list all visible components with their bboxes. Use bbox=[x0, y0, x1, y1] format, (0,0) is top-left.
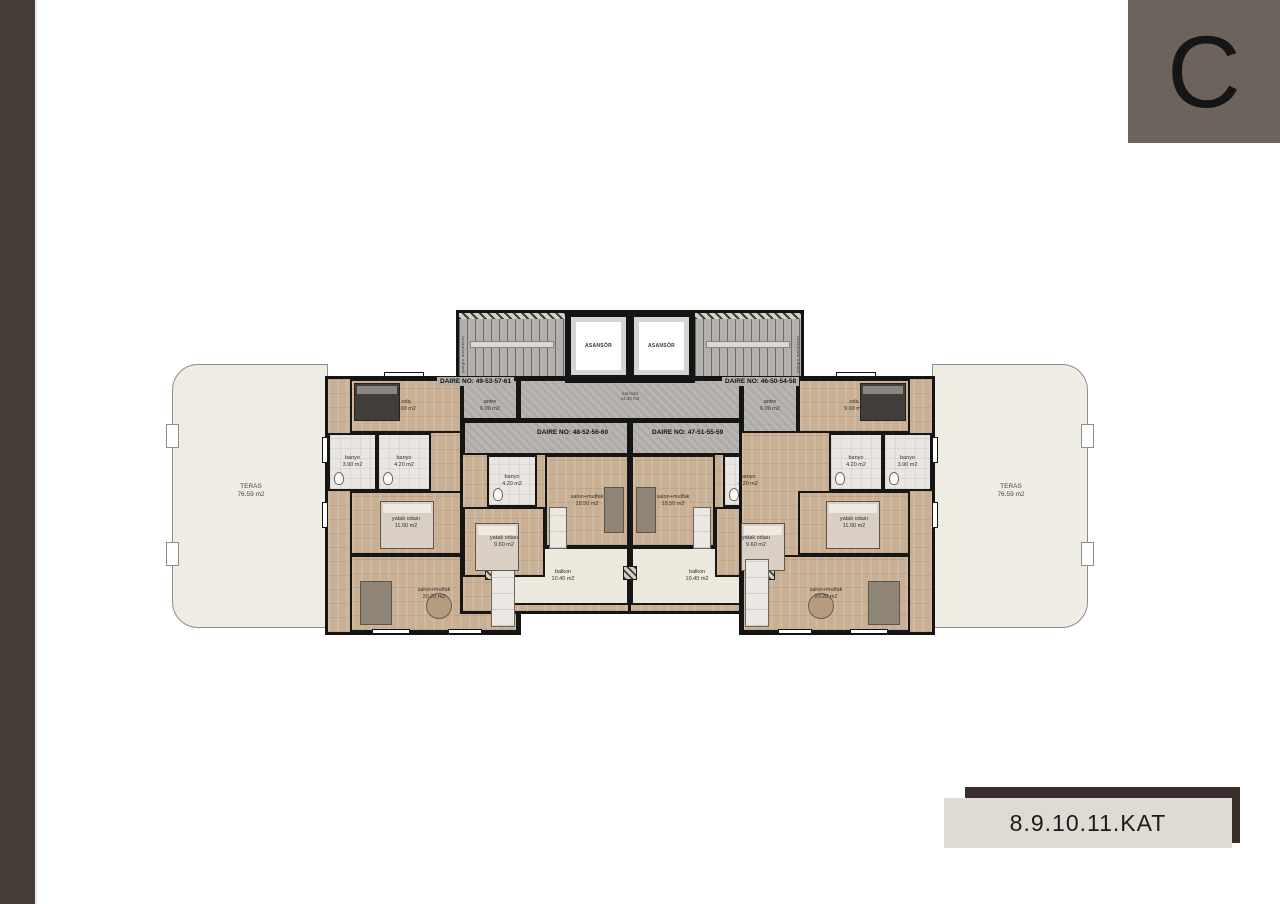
room-area: 6.00 m2 bbox=[760, 406, 780, 413]
hall-area: 14.30 m2 bbox=[606, 396, 654, 401]
room-area: 11.00 m2 bbox=[840, 523, 868, 530]
room-label: salon+mutfak 20.20 m2 bbox=[810, 587, 843, 601]
room-name: antre bbox=[480, 399, 500, 406]
room-area: 19.50 m2 bbox=[571, 501, 604, 508]
terrace-area: 76.59 m2 bbox=[971, 491, 1051, 499]
room-entry-hall bbox=[463, 421, 629, 455]
room-antre: antre 6.00 m2 bbox=[742, 379, 798, 433]
terrace-notch bbox=[166, 542, 179, 566]
daire-no-inner-left: DAIRE NO: 48-52-56-60 bbox=[534, 428, 611, 437]
daire-no-outer-left: DAIRE NO: 49-53-57-61 bbox=[437, 377, 514, 386]
room-area: 9.60 m2 bbox=[742, 542, 770, 549]
room-name: banyo bbox=[898, 455, 918, 462]
sofa bbox=[636, 487, 656, 533]
room-living-kitchen: salon+mutfak 20.20 m2 bbox=[742, 555, 910, 632]
room-area: 10.40 m2 bbox=[552, 576, 575, 583]
room-living-kitchen: salon+mutfak 19.50 m2 bbox=[545, 455, 629, 547]
room-name: banyo bbox=[502, 474, 522, 481]
terrace-right: TERAS 76.59 m2 bbox=[932, 364, 1088, 628]
room-bedroom: oda 9.00 m2 bbox=[350, 379, 462, 433]
window bbox=[836, 372, 876, 377]
window bbox=[778, 629, 812, 634]
page: { "window": { "block_letter": "C", "floo… bbox=[0, 0, 1280, 904]
room-name: balkon bbox=[552, 569, 575, 576]
kitchen-counter bbox=[693, 507, 711, 549]
elevator-label: ASANSÖR bbox=[648, 343, 675, 349]
bed bbox=[354, 383, 400, 421]
room-label: oda 9.00 m2 bbox=[844, 399, 864, 413]
room-bedroom: oda 9.00 m2 bbox=[798, 379, 910, 433]
stair-label: yangın merdiveni bbox=[795, 321, 800, 373]
room-area: 9.00 m2 bbox=[396, 406, 416, 413]
apartment-inner-left: balkon 10.40 m2 yatak odası 9.60 m2 bany… bbox=[460, 418, 632, 614]
room-label: antre 6.00 m2 bbox=[760, 399, 780, 413]
room-area: 10.40 m2 bbox=[686, 576, 709, 583]
room-name: yatak odası bbox=[840, 516, 868, 523]
room-label: banyo 4.20 m2 bbox=[502, 474, 522, 488]
terrace-left: TERAS 76.59 m2 bbox=[172, 364, 328, 628]
room-label: balkon 10.40 m2 bbox=[552, 569, 575, 583]
window bbox=[932, 502, 938, 528]
room-area: 11.00 m2 bbox=[392, 523, 420, 530]
terrace-name: TERAS bbox=[971, 483, 1051, 491]
room-living-kitchen: salon+mutfak 19.50 m2 bbox=[631, 455, 715, 547]
room-area: 3.90 m2 bbox=[898, 462, 918, 469]
column bbox=[623, 566, 637, 580]
terrace-name: TERAS bbox=[211, 483, 291, 491]
room-label: salon+mutfak 19.50 m2 bbox=[571, 494, 604, 508]
room-area: 4.20 m2 bbox=[846, 462, 866, 469]
window bbox=[932, 437, 938, 463]
room-area: 4.20 m2 bbox=[502, 481, 522, 488]
kitchen-counter bbox=[549, 507, 567, 549]
room-name: oda bbox=[396, 399, 416, 406]
hall-label: kat holü 14.30 m2 bbox=[606, 391, 654, 402]
room-name: balkon bbox=[686, 569, 709, 576]
terrace-area: 76.59 m2 bbox=[211, 491, 291, 499]
stair-landing bbox=[470, 341, 555, 348]
room-area: 9.60 m2 bbox=[490, 542, 518, 549]
terrace-notch bbox=[166, 424, 179, 448]
room-name: banyo bbox=[846, 455, 866, 462]
stairwell-right: yangın merdiveni bbox=[692, 310, 804, 379]
terrace-label: TERAS 76.59 m2 bbox=[211, 483, 291, 500]
room-label: antre 6.00 m2 bbox=[480, 399, 500, 413]
terrace-label: TERAS 76.59 m2 bbox=[971, 483, 1051, 500]
room-name: salon+mutfak bbox=[571, 494, 604, 501]
room-name: antre bbox=[760, 399, 780, 406]
room-name: banyo bbox=[343, 455, 363, 462]
room-bath-1: banyo 3.90 m2 bbox=[883, 433, 932, 491]
stair-landing bbox=[706, 341, 791, 348]
room-name: yatak odası bbox=[392, 516, 420, 523]
room-area: 3.90 m2 bbox=[343, 462, 363, 469]
window bbox=[448, 629, 482, 634]
room-name: yatak odası bbox=[490, 535, 518, 542]
room-bath-2: banyo 4.20 m2 bbox=[377, 433, 431, 491]
room-area: 9.00 m2 bbox=[844, 406, 864, 413]
hatch-strip bbox=[459, 313, 565, 319]
room-master-bedroom: yatak odası 11.00 m2 bbox=[798, 491, 910, 555]
room-bath-2: banyo 4.20 m2 bbox=[829, 433, 883, 491]
sofa bbox=[360, 581, 392, 625]
room-label: balkon 10.40 m2 bbox=[686, 569, 709, 583]
elevator-label: ASANSÖR bbox=[585, 343, 612, 349]
room-label: yatak odası 11.00 m2 bbox=[840, 516, 868, 530]
room-label: banyo 4.20 m2 bbox=[738, 474, 758, 488]
window bbox=[850, 629, 888, 634]
kitchen-counter bbox=[745, 559, 769, 627]
elevator-right: ASANSÖR bbox=[634, 317, 689, 375]
room-area: 20.20 m2 bbox=[810, 594, 843, 601]
room-label: banyo 3.90 m2 bbox=[898, 455, 918, 469]
apartment-outer-right: oda 9.00 m2 antre 6.00 m2 banyo 3.90 m2 … bbox=[739, 376, 935, 635]
hatch-strip bbox=[695, 313, 801, 319]
room-name: banyo bbox=[394, 455, 414, 462]
room-label: salon+mutfak 19.50 m2 bbox=[657, 494, 690, 508]
elevator-core: ASANSÖR ASANSÖR bbox=[565, 310, 695, 383]
room-label: oda 9.00 m2 bbox=[396, 399, 416, 413]
room-name: salon+mutfak bbox=[810, 587, 843, 594]
room-label: yatak odası 9.60 m2 bbox=[490, 535, 518, 549]
room-area: 4.20 m2 bbox=[394, 462, 414, 469]
room-area: 6.00 m2 bbox=[480, 406, 500, 413]
terrace-notch bbox=[1081, 424, 1094, 448]
room-area: 19.50 m2 bbox=[657, 501, 690, 508]
room-name: banyo bbox=[738, 474, 758, 481]
room-name: salon+mutfak bbox=[657, 494, 690, 501]
window bbox=[322, 437, 328, 463]
window bbox=[384, 372, 424, 377]
daire-no-outer-right: DAIRE NO: 46-50-54-58 bbox=[722, 377, 799, 386]
room-label: banyo 4.20 m2 bbox=[394, 455, 414, 469]
room-name: oda bbox=[844, 399, 864, 406]
room-bath-1: banyo 3.90 m2 bbox=[328, 433, 377, 491]
terrace-notch bbox=[1081, 542, 1094, 566]
room-bedroom: yatak odası 9.60 m2 bbox=[463, 507, 545, 577]
window bbox=[372, 629, 410, 634]
room-label: banyo 3.90 m2 bbox=[343, 455, 363, 469]
stairwell-left: yangın merdiveni bbox=[456, 310, 568, 379]
room-area: 4.20 m2 bbox=[738, 481, 758, 488]
window bbox=[322, 502, 328, 528]
sofa bbox=[604, 487, 624, 533]
floor-badge: 8.9.10.11.KAT bbox=[944, 798, 1232, 848]
room-label: yatak odası 11.00 m2 bbox=[392, 516, 420, 530]
elevator-left: ASANSÖR bbox=[571, 317, 626, 375]
stair-label: yangın merdiveni bbox=[460, 321, 465, 373]
room-bath: banyo 4.20 m2 bbox=[487, 455, 537, 507]
room-name: yatak odası bbox=[742, 535, 770, 542]
floor-plan: TERAS 76.59 m2 TERAS 76.59 m2 kat holü 1… bbox=[0, 0, 1280, 904]
room-label: salon+mutfak 20.20 m2 bbox=[418, 587, 451, 601]
room-name: salon+mutfak bbox=[418, 587, 451, 594]
sofa bbox=[868, 581, 900, 625]
floor-badge-label: 8.9.10.11.KAT bbox=[1010, 810, 1167, 837]
daire-no-inner-right: DAIRE NO: 47-51-55-59 bbox=[649, 428, 726, 437]
room-area: 20.20 m2 bbox=[418, 594, 451, 601]
room-master-bedroom: yatak odası 11.00 m2 bbox=[350, 491, 462, 555]
room-label: banyo 4.20 m2 bbox=[846, 455, 866, 469]
bed bbox=[860, 383, 906, 421]
room-label: yatak odası 9.60 m2 bbox=[742, 535, 770, 549]
